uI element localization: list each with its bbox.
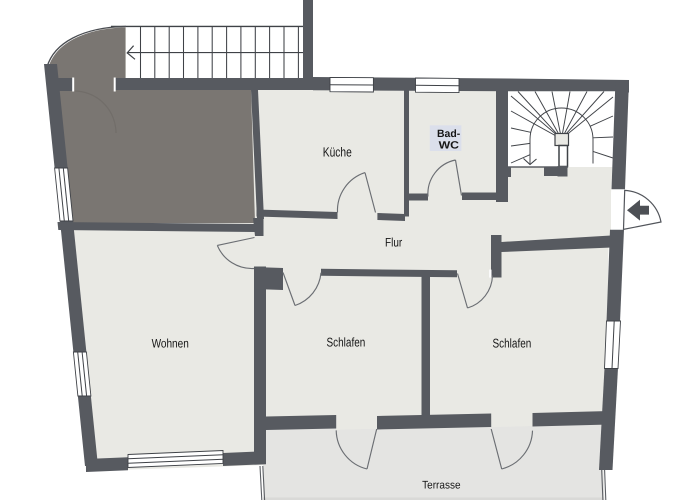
svg-text:Bad-: Bad- bbox=[437, 128, 461, 140]
svg-text:Küche: Küche bbox=[323, 144, 352, 159]
svg-text:Terrasse: Terrasse bbox=[422, 480, 461, 492]
svg-text:Wohnen: Wohnen bbox=[152, 337, 189, 351]
svg-text:Schlafen: Schlafen bbox=[493, 336, 532, 350]
svg-text:Schlafen: Schlafen bbox=[327, 335, 366, 349]
svg-text:WC: WC bbox=[439, 139, 460, 151]
svg-text:Flur: Flur bbox=[385, 236, 402, 250]
